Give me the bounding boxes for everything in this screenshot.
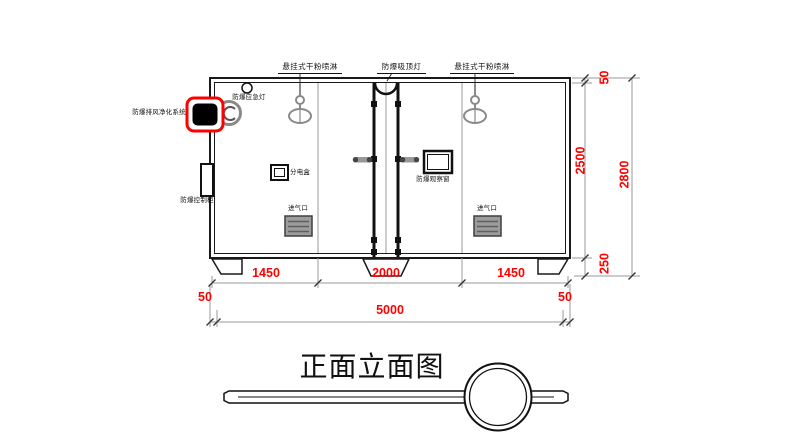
dim-wall-right: 50	[553, 291, 577, 304]
handle-cap	[353, 157, 358, 162]
label-ceiling-lamp: 防爆吸顶灯	[377, 63, 426, 74]
dim-total-height: 2800	[619, 153, 632, 197]
control-cabinet-symbol	[201, 164, 213, 196]
handle-cap	[367, 157, 372, 162]
handle-cap	[400, 157, 405, 162]
label-control-cabinet: 防爆控制柜	[179, 197, 215, 204]
label-emergency-lamp: 防爆应急灯	[231, 94, 267, 101]
dim-roof: 50	[599, 56, 612, 100]
distribution-box-symbol	[271, 165, 288, 180]
label-distribution-box: 分电盒	[290, 169, 314, 176]
label-sprinkler-right: 悬挂式干粉喷淋	[450, 63, 514, 74]
label-air-inlet-left: 进气口	[287, 205, 309, 212]
dim-bay-center: 2000	[361, 267, 411, 280]
distribution-box-inner	[275, 169, 285, 177]
exhaust-fan-grille	[193, 104, 218, 126]
dim-wall-left: 50	[193, 291, 217, 304]
dim-total-width: 5000	[363, 304, 417, 317]
label-sprinkler-left: 悬挂式干粉喷淋	[278, 63, 342, 74]
foot-left	[212, 259, 242, 274]
drawing-canvas: 悬挂式干粉喷淋 防爆吸顶灯 悬挂式干粉喷淋 防爆应急灯 防爆排风净化系统 防爆控…	[0, 0, 800, 445]
foot-right	[538, 259, 568, 274]
dim-base-height: 250	[599, 242, 612, 286]
observation-window-symbol	[424, 151, 452, 173]
dim-bay-left: 1450	[241, 267, 291, 280]
air-vent-right	[474, 216, 501, 236]
label-exhaust-purifier: 防爆排风净化系统	[130, 109, 188, 116]
label-observation-window: 防爆观察窗	[414, 176, 452, 183]
air-vent-left	[285, 216, 312, 236]
dim-bay-right: 1450	[486, 267, 536, 280]
label-air-inlet-right: 进气口	[476, 205, 498, 212]
dim-body-height: 2500	[575, 139, 588, 183]
emergency-lamp-symbol	[242, 83, 252, 93]
handle-cap	[414, 157, 419, 162]
window-pane	[428, 155, 449, 170]
section-circle-outer	[465, 364, 532, 431]
cabin-outline	[210, 78, 570, 258]
drawing-title: 正面立面图	[298, 351, 446, 385]
